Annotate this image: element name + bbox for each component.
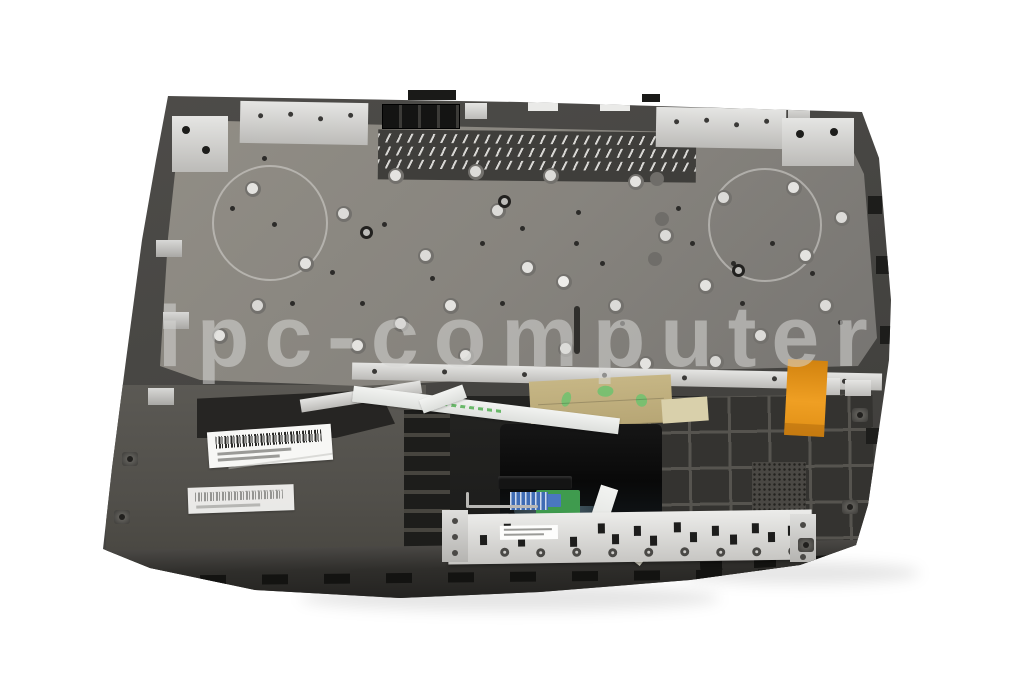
board-bracket-left [442,510,468,562]
sticker-text-line [196,503,260,508]
tape-green-mark [597,385,614,397]
speaker-circle-right [708,168,822,282]
signal-wire-bend [466,492,469,508]
vent-slot-row [378,159,696,171]
bracket-screw-dots [790,514,796,520]
battery-connector-block [382,104,460,129]
edge-tab [876,256,889,274]
screw-post [798,538,814,552]
watermark-text: ipc-computer [158,288,883,387]
hinge-screw [830,128,838,136]
grid-dots [0,0,14,14]
edge-clip [148,388,174,405]
hinge-screw [796,130,804,138]
port-nub [642,94,660,102]
screw-post [122,452,138,466]
backplate-holes [0,0,5,5]
bracket-screws [240,101,245,106]
board-label [500,525,558,540]
hinge-screw [182,126,190,134]
vent-slot-row [378,146,696,158]
plastic-tab [528,100,558,111]
barcode-sticker-bottom [188,484,295,514]
barcode [215,429,322,448]
bracket-screw-dots [442,510,448,516]
hinge-bracket-left [172,116,228,172]
tape-green-mark [634,392,648,408]
speaker-circle-left [212,165,328,281]
barcode [195,490,283,502]
mounting-bracket-top-left [240,101,369,145]
label-text-line [504,528,552,531]
port-nub [408,90,456,100]
hinge-bracket-right [782,118,854,166]
hinge-screw [202,146,210,154]
edge-clip [156,240,182,257]
signal-wire [468,505,538,508]
sticker-text-line [217,448,291,456]
keyboard-connector [498,476,572,489]
cooling-vent-panel [378,129,697,182]
ribbon-print-green [442,403,502,413]
edge-tab [866,428,880,444]
bracket-screws [656,107,661,112]
screw-post [114,510,130,524]
screw-post [852,408,868,422]
screw-dome-caps [2,2,13,13]
label-text-line [504,533,544,536]
adhesive-tape-flap [661,396,709,423]
mounting-bracket-top-right [656,107,787,149]
phillips-screw-centers [3,3,10,10]
touchpad-button-board [448,509,813,564]
product-photo-stage: ipc-computer [0,0,1024,680]
tape-green-mark [560,391,573,408]
phillips-screws [0,0,13,13]
edge-tab [868,196,882,214]
screw-post [842,500,858,514]
screw-dome-rings [0,0,16,16]
plastic-tab [600,100,630,111]
vent-slot-row [378,133,696,145]
metal-tab [465,103,487,119]
